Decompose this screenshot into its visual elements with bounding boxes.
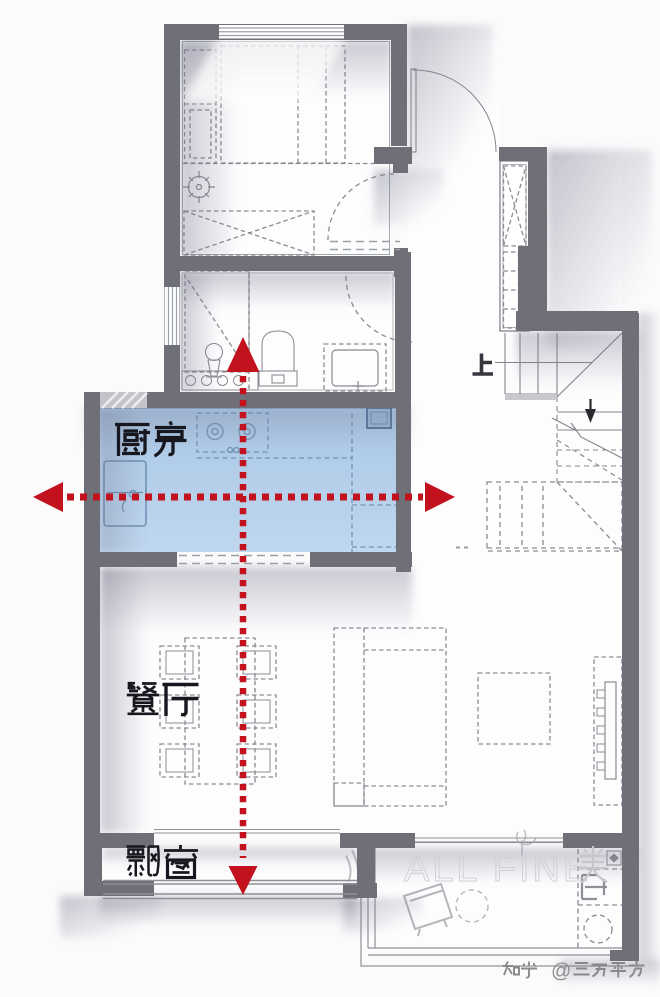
svg-text:ALL FINE: ALL FINE [404,848,591,890]
svg-text:@: @ [551,961,571,983]
